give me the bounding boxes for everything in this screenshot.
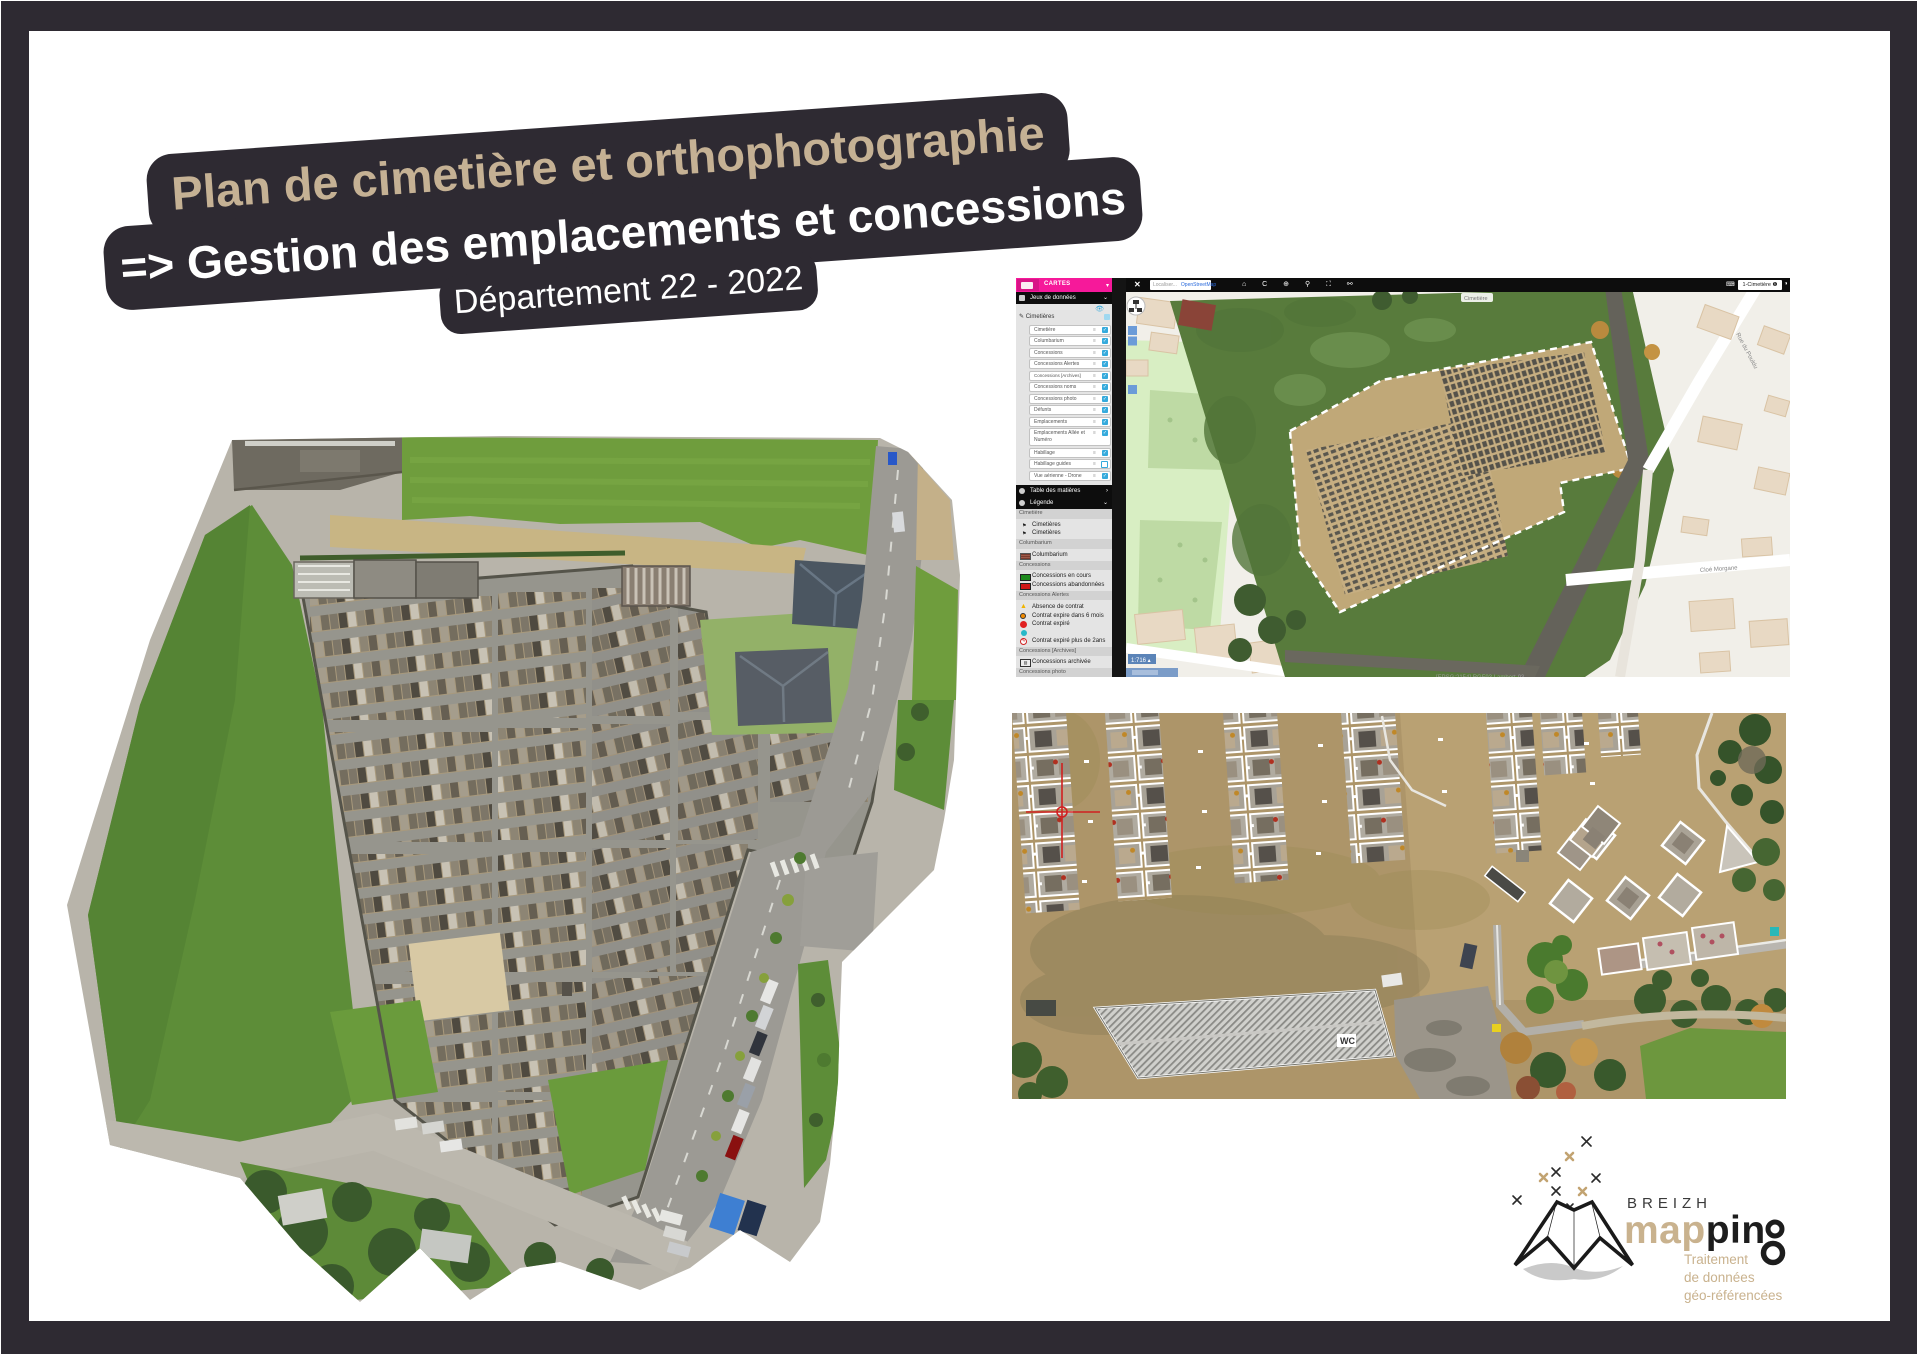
svg-text:WC: WC [1340, 1036, 1355, 1046]
svg-text:1:716 ▴: 1:716 ▴ [1131, 658, 1151, 664]
svg-text:[EPSG:2154] RGF93.Lambert-93: [EPSG:2154] RGF93.Lambert-93 [1436, 675, 1525, 677]
svg-text:Cimetière: Cimetière [1464, 296, 1488, 302]
